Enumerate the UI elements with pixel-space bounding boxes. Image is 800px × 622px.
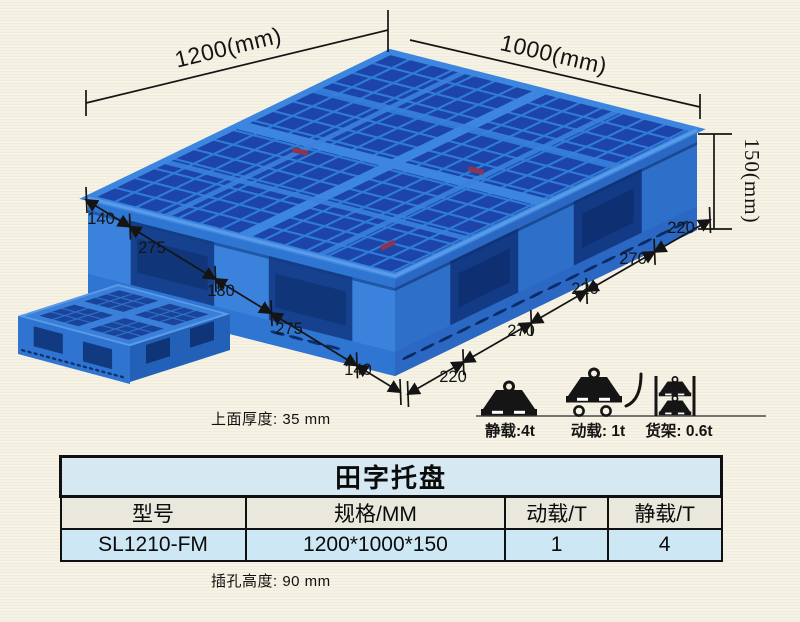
- product-sheet: 1200(mm) 1000(mm) 150(mm) 140 275 180 27…: [0, 0, 800, 600]
- right-dim-5: 220: [667, 219, 695, 237]
- spec-table: 田字托盘 型号 规格/MM 动载/T 静载/T SL1210-FM 1200*1…: [59, 455, 723, 562]
- table-title: 田字托盘: [61, 457, 722, 497]
- dimension-150: [698, 134, 732, 229]
- table-title-row: 田字托盘: [61, 457, 722, 497]
- right-dim-4: 270: [619, 250, 647, 268]
- note-top-thickness: 上面厚度: 35 mm: [211, 406, 331, 433]
- right-dim-2: 270: [507, 322, 535, 340]
- header-static-load: 静载/T: [608, 497, 722, 530]
- header-spec: 规格/MM: [246, 497, 506, 530]
- rack-load-icon: [656, 376, 694, 416]
- left-dim-2: 275: [138, 239, 166, 257]
- note-fork-height: 插孔高度: 90 mm: [211, 568, 331, 595]
- table-data-row: SL1210-FM 1200*1000*150 1 4: [61, 529, 722, 561]
- header-model: 型号: [61, 497, 246, 530]
- right-dim-1: 220: [439, 368, 467, 386]
- load-icons: 静载:4t 动载: 1t 货架: 0.6t: [476, 369, 766, 440]
- static-load-icon: [481, 382, 537, 416]
- pallet-diagram: 1200(mm) 1000(mm) 150(mm) 140 275 180 27…: [0, 0, 800, 455]
- right-dim-3: 220: [571, 280, 599, 298]
- dim-1200-label: 1200(mm): [172, 22, 284, 73]
- dynamic-load-icon: [566, 369, 641, 416]
- static-load-label: 静载:4t: [485, 421, 535, 440]
- table-header-row: 型号 规格/MM 动载/T 静载/T: [61, 497, 722, 530]
- cell-spec: 1200*1000*150: [246, 529, 506, 561]
- left-dim-5: 140: [344, 361, 372, 379]
- cell-model: SL1210-FM: [61, 529, 246, 561]
- cell-static-load: 4: [608, 529, 722, 561]
- left-dim-3: 180: [207, 282, 235, 300]
- left-dim-1: 140: [87, 210, 115, 228]
- left-dim-4: 275: [275, 320, 303, 338]
- header-dynamic-load: 动载/T: [505, 497, 607, 530]
- cell-dynamic-load: 1: [505, 529, 607, 561]
- dim-150-label: 150(mm): [740, 138, 764, 223]
- dynamic-load-label: 动载: 1t: [571, 422, 625, 440]
- rack-load-label: 货架: 0.6t: [645, 421, 712, 440]
- dim-1000-label: 1000(mm): [498, 29, 610, 79]
